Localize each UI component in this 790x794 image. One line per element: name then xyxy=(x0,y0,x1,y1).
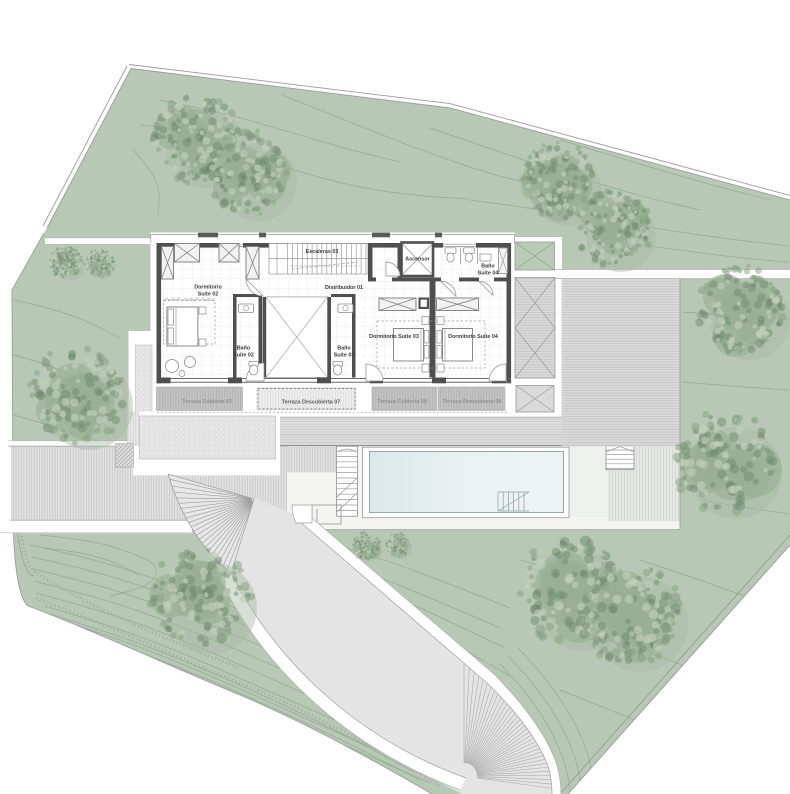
svg-text:Suite 02: Suite 02 xyxy=(198,292,219,298)
svg-text:Baño: Baño xyxy=(481,264,495,270)
svg-text:Ascensor: Ascensor xyxy=(405,257,430,263)
svg-text:Terraza Cubierta 03: Terraza Cubierta 03 xyxy=(182,399,232,405)
svg-text:Terraza Cubierta 04: Terraza Cubierta 04 xyxy=(377,399,427,405)
svg-text:Terraza Descubierta 08: Terraza Descubierta 08 xyxy=(443,399,502,405)
svg-text:Dormitorio Suite 04: Dormitorio Suite 04 xyxy=(448,334,498,340)
svg-text:Dormitorio: Dormitorio xyxy=(194,285,222,291)
svg-text:Baño: Baño xyxy=(237,346,251,352)
svg-text:Terraza Descubierta 07: Terraza Descubierta 07 xyxy=(282,400,341,406)
svg-text:Dormitorio Suite 03: Dormitorio Suite 03 xyxy=(369,334,419,340)
svg-text:Distribuidor 01: Distribuidor 01 xyxy=(325,285,363,291)
svg-text:Escaleras 03: Escaleras 03 xyxy=(306,249,339,255)
svg-text:Suite 02: Suite 02 xyxy=(233,353,254,359)
svg-text:Suite 03: Suite 03 xyxy=(334,353,355,359)
svg-text:Suite 04: Suite 04 xyxy=(478,271,499,277)
svg-text:Baño: Baño xyxy=(337,346,351,352)
